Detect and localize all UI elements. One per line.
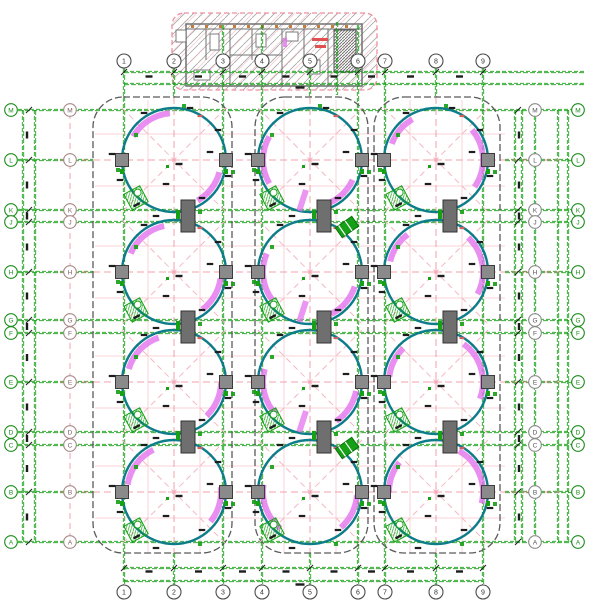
valve-mark (428, 277, 431, 280)
grid-bubble-label: 7 (383, 59, 387, 66)
dimension-text-mark (245, 485, 252, 487)
grid-bubble-label: K (576, 207, 581, 214)
dimension-text-mark (456, 570, 463, 572)
grid-bubble-label: K (533, 207, 538, 214)
tank (109, 104, 235, 217)
dimension-text-mark (207, 263, 214, 265)
valve-mark (428, 497, 431, 500)
dimension-text-mark (296, 86, 305, 88)
pipe-pad (378, 154, 391, 167)
dimension-text-mark (335, 419, 342, 421)
valve-mark (360, 501, 364, 506)
dimension-tick (259, 565, 265, 571)
valve-mark (334, 542, 338, 546)
grid-bubble-label: A (533, 539, 538, 546)
valve-mark (312, 210, 316, 219)
grid-bubble-label: F (68, 330, 72, 337)
green-equipment-unit (335, 216, 358, 237)
valve-mark (252, 280, 256, 284)
dimension-text-mark (163, 515, 170, 517)
dimension-text-mark (438, 385, 445, 387)
dimension-text-mark (225, 507, 232, 509)
magenta-bar (296, 189, 309, 212)
valve-mark (166, 387, 169, 390)
valve-mark (256, 169, 260, 174)
valve-mark (252, 390, 256, 394)
tank (371, 436, 497, 549)
valve-mark (486, 169, 490, 174)
dimension-text-mark (26, 323, 28, 330)
grid-bubble-label: 9 (481, 590, 485, 597)
building-fixture (210, 34, 219, 50)
dimension-text-mark (199, 419, 206, 421)
magenta-chute (296, 189, 309, 212)
row-connector (317, 200, 331, 232)
dimension-text-mark (518, 354, 520, 361)
valve-mark (120, 501, 124, 506)
tank (371, 104, 497, 217)
dimension-text-mark (518, 244, 520, 251)
dimension-text-mark (163, 295, 170, 297)
dimension-text-mark (518, 323, 520, 330)
dimension-text-mark (117, 179, 124, 181)
dimension-text-mark (461, 309, 468, 311)
plan-drawing: 112233445566778899MMMMLLLLKKKKJJJJHHHHGG… (0, 0, 600, 600)
dimension-tick (433, 565, 439, 571)
grid-bubble-label: M (532, 107, 537, 114)
axis-bubbles: 112233445566778899MMMMLLLLKKKKJJJJHHHHGG… (5, 54, 585, 599)
grid-bubble-label: E (533, 379, 538, 386)
grid-bubble-label: E (576, 379, 581, 386)
tank (245, 216, 371, 329)
dimension-text-mark (289, 215, 296, 217)
grid-bubble-label: J (68, 219, 71, 226)
valve-mark (302, 497, 305, 500)
dimension-text-mark (331, 570, 338, 572)
grid-bubble-label: E (9, 379, 14, 386)
dimension-text-mark (153, 437, 160, 439)
dimension-text-mark (253, 511, 260, 513)
dimension-text-mark (518, 465, 520, 472)
dimension-text-mark (109, 375, 116, 377)
grid-bubble-label: 9 (481, 59, 485, 66)
valve-mark (428, 165, 431, 168)
valve-mark (134, 355, 138, 359)
dimension-text-mark (207, 373, 214, 375)
pipe-pad (378, 266, 391, 279)
valve-mark (382, 501, 386, 506)
valve-mark (460, 542, 464, 546)
dimension-text-mark (343, 373, 350, 375)
dimension-text-mark (153, 547, 160, 549)
dimension-text-mark (407, 75, 414, 77)
valve-mark (367, 282, 371, 286)
grid-bubble-label: F (576, 330, 580, 337)
dimension-text-mark (26, 244, 28, 251)
dimension-text-mark (334, 337, 339, 339)
row-connector (443, 200, 457, 232)
building-fixture (286, 32, 298, 41)
pipe-pad (356, 486, 369, 499)
grid-bubble-label: L (576, 157, 580, 164)
grid-bubble-label: K (68, 207, 73, 214)
grid-bubble-label: K (9, 207, 14, 214)
grid-bubble-label: 5 (308, 590, 312, 597)
scraper-arc (207, 383, 221, 416)
valve-mark (224, 501, 228, 506)
grid-bubble-label: L (68, 157, 72, 164)
dimension-text-mark (299, 183, 306, 185)
dimension-tick (26, 442, 32, 448)
dimension-text-mark (371, 153, 378, 155)
dimension-text-mark (361, 287, 368, 289)
dimension-text-mark (109, 153, 116, 155)
valve-mark (231, 282, 235, 286)
valve-mark (378, 168, 382, 172)
grid-bubble-label: J (9, 219, 12, 226)
dimension-text-mark (335, 197, 342, 199)
grid-bubble-label: D (9, 429, 14, 436)
dimension-tick (121, 69, 127, 75)
valve-mark (382, 281, 386, 286)
grid-bubble-label: M (67, 107, 72, 114)
wall-dot (219, 25, 222, 28)
pipe-pad (252, 154, 265, 167)
grid-bubble-label: E (68, 379, 73, 386)
valve-mark (198, 210, 202, 214)
valve-mark (396, 245, 400, 249)
dimension-tick (26, 429, 32, 435)
grid-bubble-label: C (68, 442, 73, 449)
dimension-text-mark (26, 404, 28, 411)
pipe-pad (252, 486, 265, 499)
grid-bubble-label: 6 (356, 59, 360, 66)
grid-bubble-label: L (533, 157, 537, 164)
valve-mark (378, 390, 382, 394)
valve-mark (396, 465, 400, 469)
grid-bubble-label: H (533, 269, 538, 276)
pipe-pad (116, 154, 129, 167)
pipe-pad (482, 154, 495, 167)
red-note-mark (315, 45, 326, 48)
wall-dot (303, 25, 306, 28)
dimension-text-mark (141, 334, 148, 336)
scraper-arc (389, 348, 403, 377)
valve-mark (360, 169, 364, 174)
valve-mark (396, 355, 400, 359)
dimension-text-mark (283, 75, 290, 77)
pipe-pad (482, 376, 495, 389)
valve-mark (252, 500, 256, 504)
dimension-text-mark (198, 115, 203, 117)
valve-mark (493, 502, 497, 506)
pipe-pad (378, 376, 391, 389)
dimension-text-mark (403, 334, 410, 336)
dimension-text-mark (198, 447, 203, 449)
dimension-text-mark (289, 437, 296, 439)
valve-mark (493, 282, 497, 286)
valve-mark (270, 245, 274, 249)
valve-mark (367, 170, 371, 174)
grid-bubble-label: J (533, 219, 536, 226)
grid-bubble-label: B (533, 489, 537, 496)
dimension-text-mark (460, 227, 465, 229)
dimension-text-mark (225, 397, 232, 399)
grid-bubble-label: D (68, 429, 73, 436)
dimension-text-mark (351, 129, 358, 131)
dimension-text-mark (461, 197, 468, 199)
dimension-tick (220, 565, 226, 571)
dimension-text-mark (425, 405, 432, 407)
row-connector (443, 421, 457, 453)
dimension-text-mark (487, 175, 494, 177)
grid-bubble-label: F (533, 330, 537, 337)
dimension-tick (480, 69, 486, 75)
valve-mark (438, 210, 442, 219)
dimension-text-mark (163, 183, 170, 185)
valve-mark (116, 390, 120, 394)
dimension-tick (26, 489, 32, 495)
wall-dot (317, 25, 320, 28)
pipe-pad (220, 266, 233, 279)
dimension-tick (26, 539, 32, 545)
valve-mark (231, 170, 235, 174)
wall-dot (205, 25, 208, 28)
magenta-bar (296, 410, 309, 433)
dimension-text-mark (199, 309, 206, 311)
dimension-text-mark (215, 351, 222, 353)
tank (371, 326, 497, 439)
dimension-text-mark (26, 514, 28, 521)
row-connector (181, 421, 195, 453)
dimension-text-mark (343, 151, 350, 153)
valve-mark (252, 168, 256, 172)
dimension-text-mark (438, 275, 445, 277)
dimension-text-mark (425, 183, 432, 185)
valve-mark (134, 245, 138, 249)
dimension-tick (26, 317, 32, 323)
wall-dot (345, 25, 348, 28)
valve-mark (396, 133, 400, 137)
dimension-text-mark (415, 215, 422, 217)
dimension-text-mark (469, 483, 476, 485)
grid-bubble-label: F (9, 330, 13, 337)
grid-bubble-label: J (576, 219, 579, 226)
pipe-pad (220, 376, 233, 389)
dimension-text-mark (403, 112, 410, 114)
dimension-text-mark (371, 485, 378, 487)
dimension-text-mark (176, 385, 183, 387)
pipe-pad (356, 266, 369, 279)
dimension-text-mark (312, 163, 319, 165)
valve-mark (378, 280, 382, 284)
valve-mark (134, 133, 138, 137)
pipe-pad (116, 266, 129, 279)
grid-bubble-label: B (68, 489, 72, 496)
valve-mark (134, 465, 138, 469)
pipe-pad (482, 486, 495, 499)
wall-dot (331, 25, 334, 28)
grid-bubble-label: G (8, 317, 13, 324)
valve-mark (182, 104, 186, 108)
dimension-text-mark (403, 224, 410, 226)
dimension-text-mark (207, 151, 214, 153)
dimension-text-mark (456, 75, 463, 77)
grid-bubble-label: 2 (172, 59, 176, 66)
dimension-text-mark (253, 401, 260, 403)
dimension-text-mark (379, 401, 386, 403)
valve-mark (318, 104, 322, 108)
dimension-text-mark (176, 275, 183, 277)
dimension-text-mark (343, 263, 350, 265)
grid-bubble-label: 4 (260, 59, 264, 66)
pipe-pad (116, 486, 129, 499)
valve-mark (486, 281, 490, 286)
grid-bubble-label: G (67, 317, 72, 324)
scraper-arc (133, 113, 170, 136)
pipe-pad (356, 376, 369, 389)
grid-bubble-label: L (9, 157, 13, 164)
dimension-text-mark (518, 182, 520, 189)
valve-mark (224, 169, 228, 174)
valve-mark (166, 165, 169, 168)
dimension-text-mark (487, 287, 494, 289)
dimension-text-mark (331, 75, 338, 77)
dimension-text-mark (323, 107, 330, 109)
dimension-tick (171, 565, 177, 571)
dimension-text-mark (117, 291, 124, 293)
valve-mark (334, 322, 338, 326)
scraper-arc (129, 338, 159, 369)
pipe-pad (220, 486, 233, 499)
grid-bubble-label: B (576, 489, 580, 496)
dimension-text-mark (518, 514, 520, 521)
valve-mark (302, 165, 305, 168)
dimension-text-mark (277, 112, 284, 114)
row-connector (317, 421, 331, 453)
grid-bubble-label: B (9, 489, 13, 496)
dimension-text-mark (469, 151, 476, 153)
dimension-text-mark (253, 291, 260, 293)
dimension-text-mark (26, 435, 28, 442)
valve-mark (428, 387, 431, 390)
valve-mark (460, 322, 464, 326)
dimension-text-mark (403, 444, 410, 446)
valve-mark (116, 280, 120, 284)
dimension-text-mark (141, 224, 148, 226)
tank (371, 216, 497, 329)
grid-bubble-label: M (8, 107, 13, 114)
valve-mark (270, 355, 274, 359)
valve-mark (224, 281, 228, 286)
tank (245, 104, 371, 217)
equipment-body (335, 437, 358, 458)
grid-bubble-label: A (9, 539, 14, 546)
tank (109, 216, 235, 329)
dimension-text-mark (461, 529, 468, 531)
valve-mark (120, 391, 124, 396)
valve-mark (367, 502, 371, 506)
dimension-tick (26, 207, 32, 213)
dimension-text-mark (299, 405, 306, 407)
pipe-pad (252, 266, 265, 279)
grid-bubble-label: C (576, 442, 581, 449)
valve-mark (198, 432, 202, 436)
grid-bubble-label: D (533, 429, 538, 436)
valve-mark (438, 321, 442, 330)
valve-mark (176, 431, 180, 440)
tank (245, 436, 371, 549)
dimension-text-mark (312, 385, 319, 387)
dimension-text-mark (239, 75, 246, 77)
valve-mark (367, 392, 371, 396)
valve-mark (460, 210, 464, 214)
grid-bubble-label: 3 (221, 59, 225, 66)
red-note-mark (312, 38, 328, 41)
dimension-tick (355, 565, 361, 571)
scraper-arc (128, 450, 154, 485)
grid-bubble-label: C (533, 442, 538, 449)
dimension-text-mark (26, 213, 28, 220)
dimension-text-mark (438, 495, 445, 497)
dimension-text-mark (195, 75, 202, 77)
valve-mark (493, 170, 497, 174)
dimension-text-mark (225, 175, 232, 177)
dimension-text-mark (312, 495, 319, 497)
dimension-text-mark (146, 75, 153, 77)
dimension-text-mark (438, 163, 445, 165)
valve-mark (378, 500, 382, 504)
dimension-text-mark (343, 483, 350, 485)
dimension-tick (480, 565, 486, 571)
pipe-pad (356, 154, 369, 167)
dimension-tick (26, 330, 32, 336)
dimension-text-mark (117, 401, 124, 403)
dimension-text-mark (469, 373, 476, 375)
valve-mark (224, 391, 228, 396)
dimension-tick (26, 219, 32, 225)
grid-bubble-label: C (9, 442, 14, 449)
valve-mark (486, 501, 490, 506)
valve-mark (486, 391, 490, 396)
dimension-text-mark (299, 515, 306, 517)
dimension-text-mark (477, 351, 484, 353)
grid-bubble-label: G (532, 317, 537, 324)
magenta-mark (283, 38, 287, 47)
dimension-text-mark (334, 115, 339, 117)
dimension-text-mark (187, 107, 194, 109)
dimension-text-mark (415, 547, 422, 549)
dimension-text-mark (26, 354, 28, 361)
dimension-text-mark (289, 327, 296, 329)
dimension-tick (26, 379, 32, 385)
valve-mark (302, 277, 305, 280)
valve-mark (176, 321, 180, 330)
dimension-text-mark (460, 115, 465, 117)
grid-bubble-label: 8 (434, 590, 438, 597)
grid-bubble-label: 5 (308, 59, 312, 66)
magenta-chute (296, 410, 309, 433)
dimension-text-mark (296, 583, 305, 585)
valve-mark (120, 281, 124, 286)
dimension-text-mark (198, 337, 203, 339)
dimension-text-mark (146, 570, 153, 572)
grid-bubble-label: 2 (172, 590, 176, 597)
grid-bubble-label: G (575, 317, 580, 324)
dimension-text-mark (225, 287, 232, 289)
wall-dot (289, 25, 292, 28)
grid-bubble-label: H (68, 269, 73, 276)
